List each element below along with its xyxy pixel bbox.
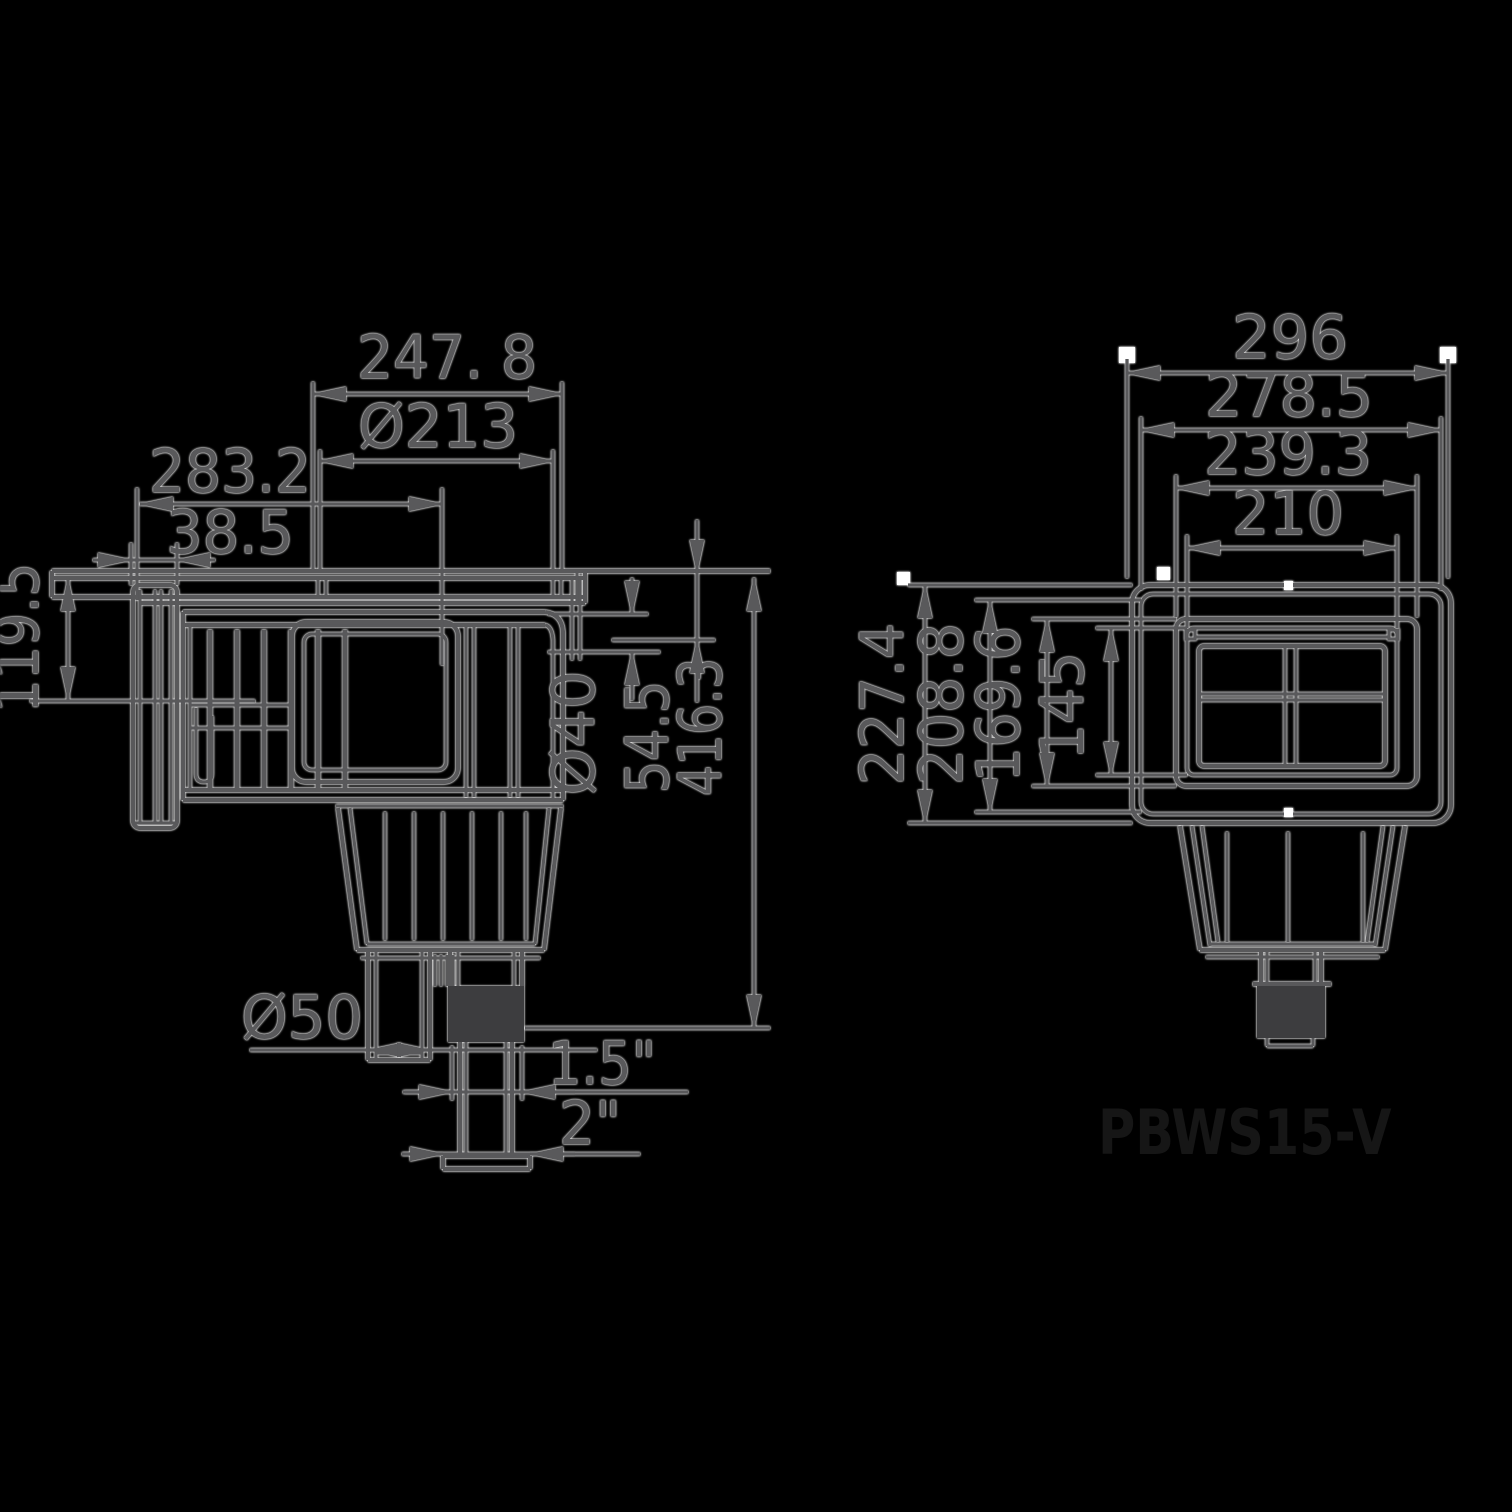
dim-faceplate-height-label: 169.6	[964, 626, 1034, 782]
skimmer-technical-drawing: 247. 8 Ø213 283.2 38.5 119.5	[0, 0, 1512, 1512]
screw-right	[1389, 630, 1398, 639]
front-outlet	[368, 952, 453, 1060]
dim-return-port-label: Ø40	[539, 671, 609, 796]
left-view-dimensions: 247. 8 Ø213 283.2 38.5 119.5	[0, 323, 770, 1159]
dimension-drawing-canvas: 247. 8 Ø213 283.2 38.5 119.5	[0, 0, 1512, 1512]
left-view-geometry	[52, 571, 770, 1169]
dim-body-depth-label: 283.2	[149, 437, 311, 507]
dim-lid-diameter-label: Ø213	[358, 392, 518, 462]
dim-wall-thickness-label: 38.5	[166, 498, 294, 568]
outlet-front	[1253, 950, 1331, 1046]
window-cross	[1199, 646, 1385, 766]
grip-mark	[1284, 581, 1293, 590]
dim-flange-height-label: 119.5	[0, 563, 53, 713]
model-number-label: PBWS15-V	[1098, 1096, 1391, 1169]
dim-lid-diameter: Ø213	[320, 392, 553, 570]
dim-overall-height-label: 416.3	[666, 658, 736, 796]
basket-front	[1180, 826, 1405, 957]
dim-opening-height: 145	[1028, 628, 1187, 775]
grip-mark	[1284, 808, 1293, 817]
dim-top-width-label: 247. 8	[357, 323, 537, 393]
right-view-dimensions: 296 278.5 239.3 210 227.4	[848, 303, 1448, 823]
dim-outlet-thread-small: 1.5"	[403, 1029, 688, 1100]
grip-mark	[1157, 567, 1170, 580]
dim-opening-width-label: 210	[1232, 479, 1344, 549]
dim-opening-height-label: 145	[1028, 652, 1098, 760]
bottom-outlet	[443, 952, 530, 1169]
weir-grate	[190, 630, 345, 788]
dim-flange-height: 119.5	[0, 563, 255, 713]
dim-opening-width: 210	[1187, 479, 1397, 628]
dim-outlet-diameter-label: Ø50	[241, 983, 363, 1053]
dim-outlet-diameter: Ø50	[241, 983, 597, 1053]
grip-mark	[897, 572, 910, 585]
dim-outlet-thread-large-label: 2"	[559, 1089, 621, 1159]
basket-side	[336, 806, 563, 958]
screw-left	[1186, 630, 1195, 639]
